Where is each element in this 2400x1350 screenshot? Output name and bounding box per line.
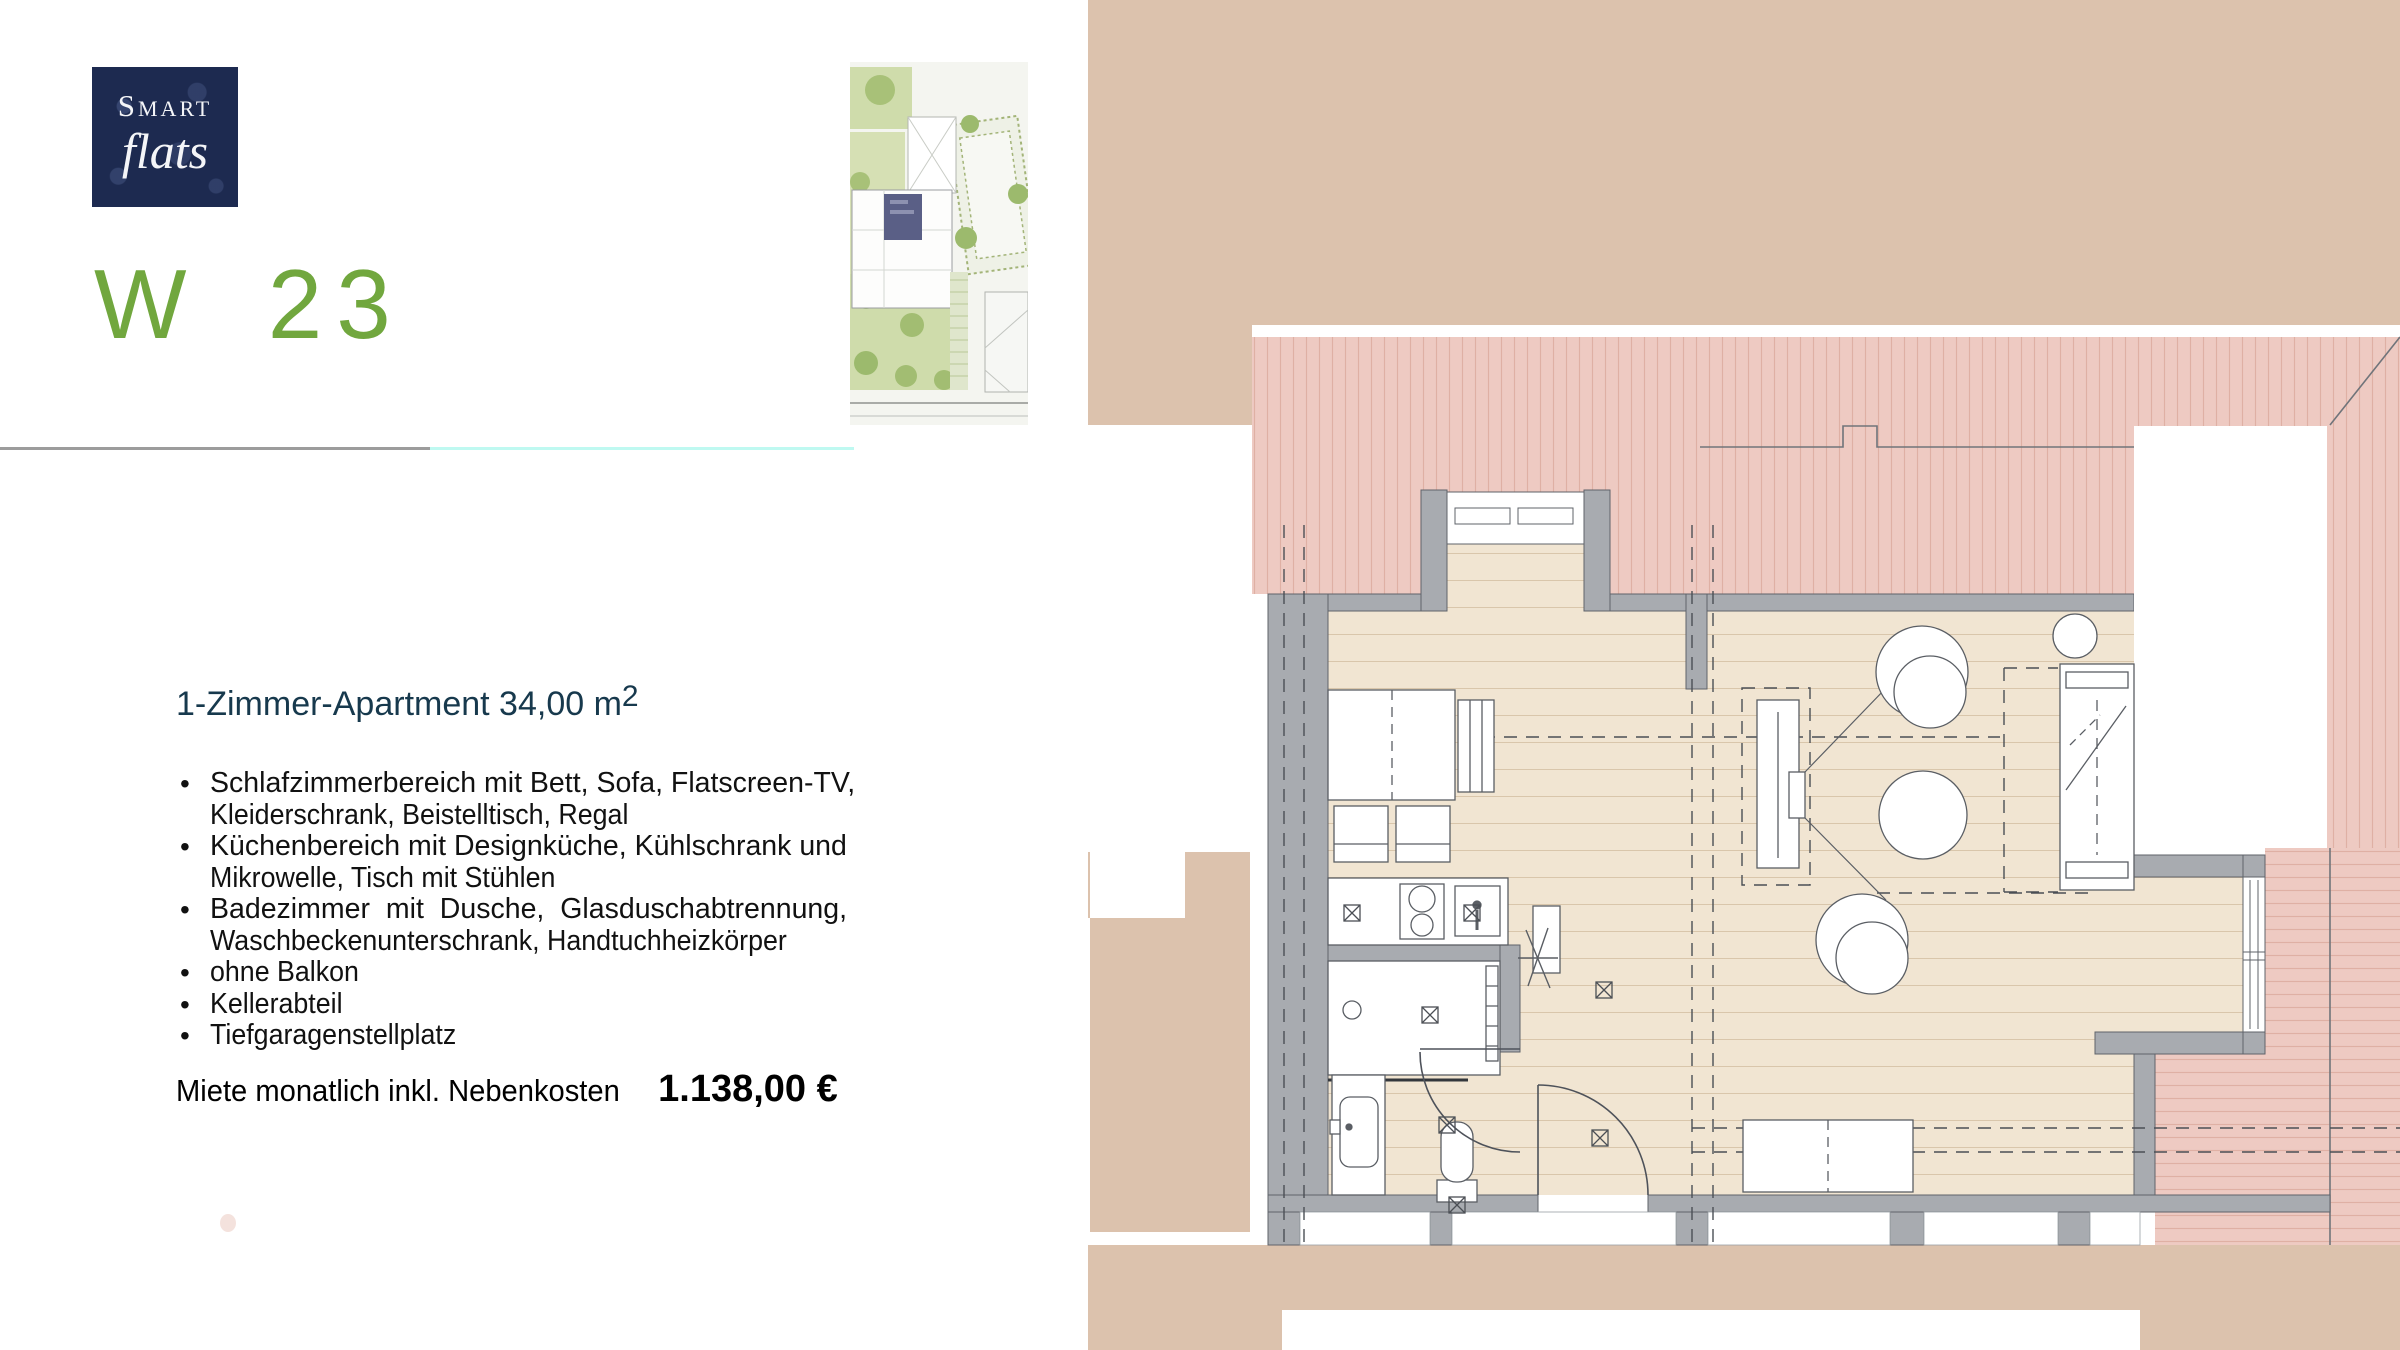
- divider-line-cyan: [430, 447, 854, 450]
- kitchen-counter-group: [1328, 878, 1508, 945]
- siteplan-neighbor-building: [985, 292, 1028, 392]
- bottom-windows: [1300, 1212, 2140, 1245]
- feature-line: ohne Balkon: [210, 957, 892, 989]
- rent-label: Miete monatlich inkl. Nebenkosten: [176, 1073, 620, 1109]
- feature-item: Schlafzimmerbereich mit Bett, Sofa, Flat…: [176, 768, 936, 831]
- feature-line: Tiefgaragenstellplatz: [210, 1020, 892, 1052]
- apartment-description: 1-Zimmer-Apartment 34,00 m2 Schlafzimmer…: [176, 680, 936, 1111]
- feature-line: Kleiderschrank, Beistelltisch, Regal: [210, 800, 892, 832]
- plan-cutout: [2134, 427, 2327, 848]
- siteplan-roof-building: [908, 117, 956, 193]
- feature-line: Schlafzimmerbereich mit Bett, Sofa, Flat…: [210, 768, 936, 800]
- feature-item: ohne Balkon: [176, 957, 936, 989]
- bed-group: [2060, 664, 2134, 890]
- logo-word-flats: flats: [92, 125, 238, 177]
- feature-list: Schlafzimmerbereich mit Bett, Sofa, Flat…: [176, 768, 936, 1052]
- sideboard-group: [1743, 1120, 1913, 1192]
- feature-item: Küchenbereich mit Designküche, Kühlschra…: [176, 831, 936, 894]
- feature-line: Badezimmer mit Dusche, Glasduschabtrennu…: [210, 894, 936, 926]
- feature-line: Kellerabteil: [210, 989, 892, 1021]
- feature-item: Tiefgaragenstellplatz: [176, 1020, 936, 1052]
- roof-ridge: [1252, 325, 2400, 337]
- unit-code: W 23: [94, 248, 405, 361]
- siteplan-main-building: [852, 190, 952, 308]
- rent-value: 1.138,00 €: [658, 1068, 838, 1110]
- feature-line: Mikrowelle, Tisch mit Stühlen: [210, 863, 892, 895]
- feature-line: Küchenbereich mit Designküche, Kühlschra…: [210, 831, 936, 863]
- logo-word-smart: Smart: [92, 89, 238, 123]
- apartment-title-text: 1-Zimmer-Apartment 34,00 m: [176, 685, 622, 723]
- divider-line-gray: [0, 447, 430, 450]
- apartment-title-sup: 2: [622, 680, 639, 713]
- expose-page: Smart flats W 23: [0, 0, 2400, 1350]
- siteplan-path: [950, 272, 968, 390]
- scan-artifact: [220, 1214, 236, 1232]
- feature-item: Badezimmer mit Dusche, Glasduschabtrennu…: [176, 894, 936, 957]
- dormer-window: [1447, 492, 1584, 544]
- siteplan-thumbnail: [850, 62, 1028, 425]
- bay-window: [2243, 877, 2265, 1032]
- floorplan-image: [1088, 0, 2400, 1350]
- feature-line: Waschbeckenunterschrank, Handtuchheizkör…: [210, 926, 892, 958]
- rent-line: Miete monatlich inkl. Nebenkosten1.138,0…: [176, 1068, 936, 1111]
- smartflats-logo: Smart flats: [92, 67, 238, 207]
- feature-item: Kellerabteil: [176, 989, 936, 1021]
- apartment-title: 1-Zimmer-Apartment 34,00 m2: [176, 680, 936, 724]
